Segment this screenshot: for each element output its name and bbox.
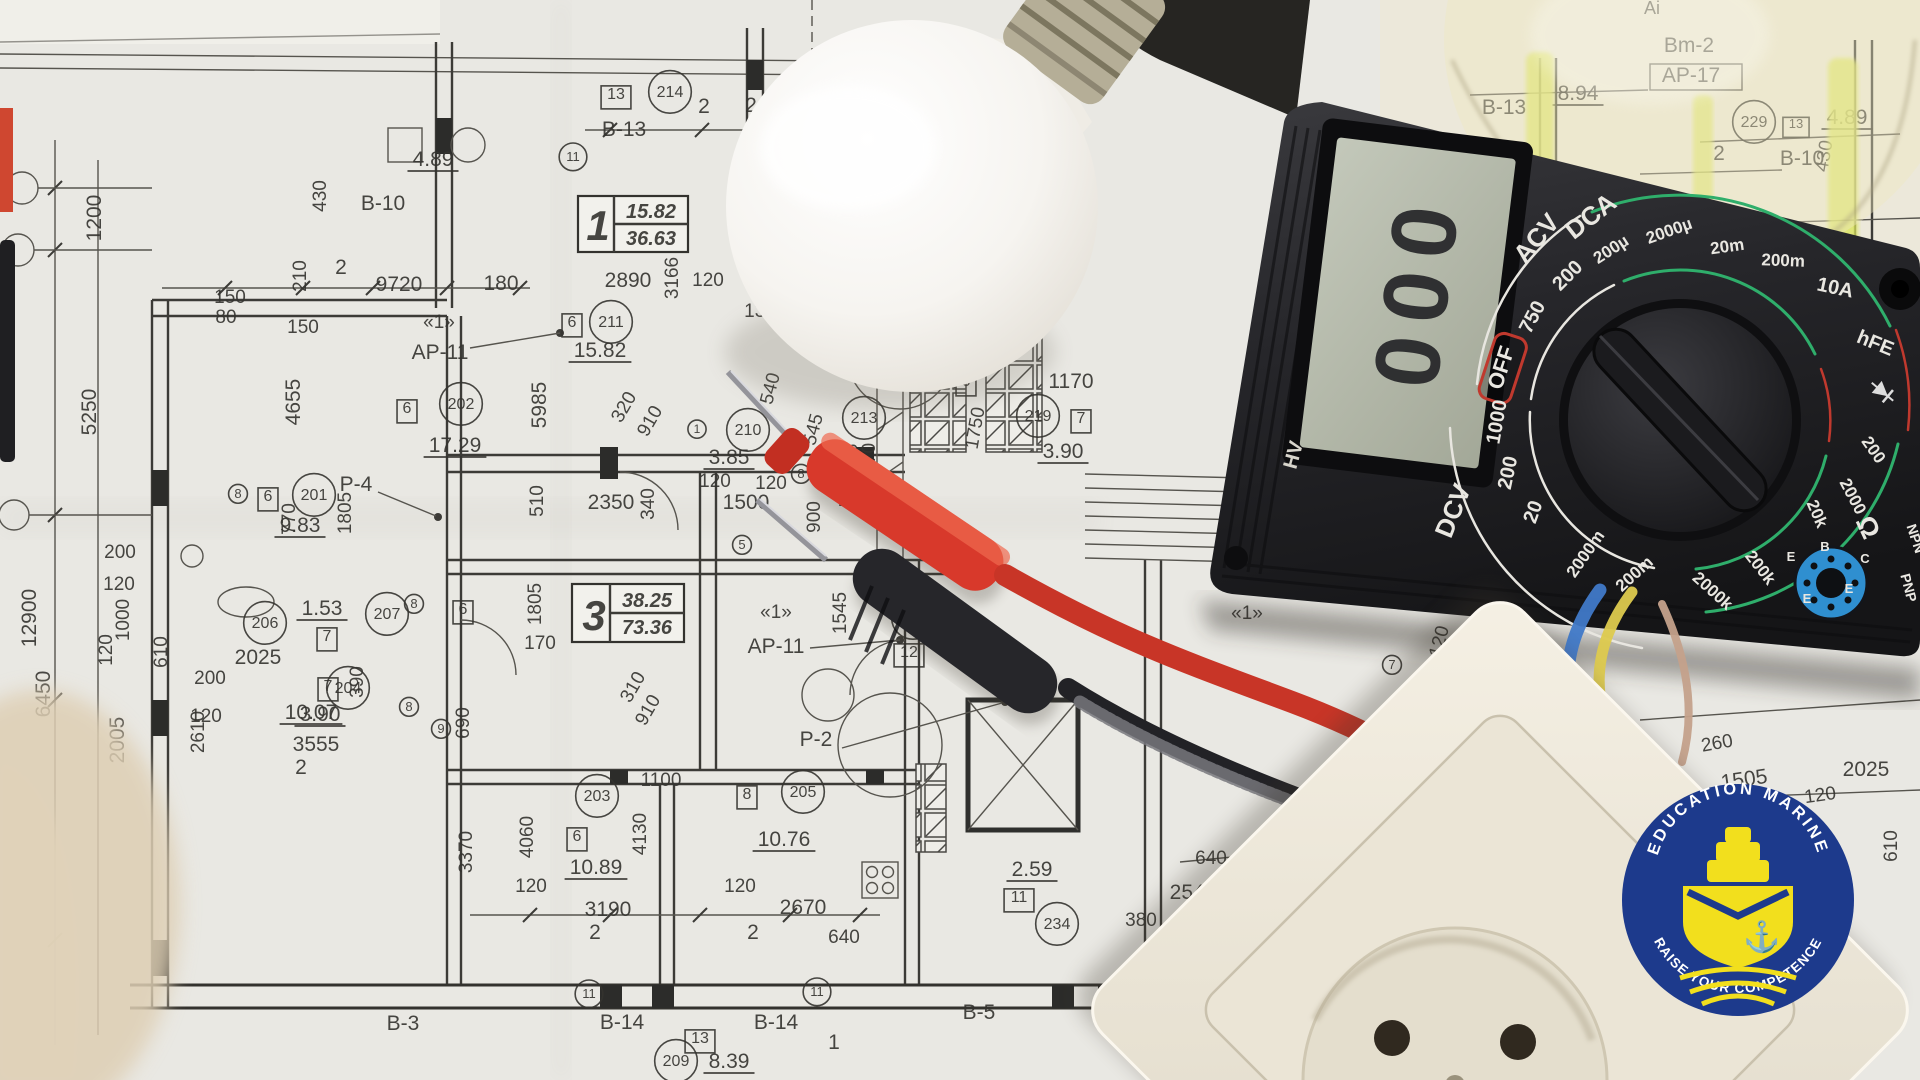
plan-label: 1 xyxy=(828,1031,840,1054)
black-strip xyxy=(0,240,15,462)
plan-label: 180 xyxy=(483,272,518,295)
plan-label: 5 xyxy=(738,537,745,552)
plan-label: 430 xyxy=(310,180,331,212)
plan-label: 2 xyxy=(295,756,307,779)
plan-label: AP-11 xyxy=(748,635,805,658)
plan-label: 11 xyxy=(582,986,596,1001)
plan-label: «1» xyxy=(760,602,792,623)
plan-label: 204 xyxy=(335,680,362,697)
case-screw xyxy=(1224,546,1248,570)
plan-label: 3370 xyxy=(456,831,477,873)
plan-label: 209 xyxy=(663,1053,690,1070)
plan-label: 8 xyxy=(405,699,412,714)
plan-label: 8 xyxy=(743,786,752,803)
plan-label: 3166 xyxy=(662,257,683,299)
transistor-socket xyxy=(1795,547,1867,619)
plan-label: 2 xyxy=(698,95,710,118)
plan-label: 8 xyxy=(797,466,804,481)
plan-label: 2.59 xyxy=(1012,858,1053,881)
plan-label: 4060 xyxy=(517,816,538,858)
plan-label: 10.07 xyxy=(285,701,338,724)
plan-label: 1200 xyxy=(83,195,106,242)
plan-label: 120 xyxy=(692,270,724,291)
dial-label: E xyxy=(1787,549,1796,564)
plan-label: 1.53 xyxy=(302,597,343,620)
plan-label: 610 xyxy=(151,636,172,668)
plan-label: 170 xyxy=(524,633,556,654)
plan-label: 201 xyxy=(301,487,328,504)
plan-label: 15.82 xyxy=(626,201,676,223)
plan-label: 210 xyxy=(290,260,311,292)
dial-label: 200m xyxy=(1761,250,1805,271)
plan-label: B-14 xyxy=(754,1011,799,1034)
dial-label: E xyxy=(1803,591,1812,606)
plan-label: 205 xyxy=(790,784,817,801)
plan-label: 120 xyxy=(699,471,731,492)
plan-label: 9.83 xyxy=(280,514,321,537)
plan-label: 1805 xyxy=(335,492,356,534)
plan-label: 11 xyxy=(1011,889,1028,906)
scene-svg: 4.89B-1043021200525012900645097201801508… xyxy=(0,0,1920,1080)
plan-label: B-10 xyxy=(361,192,405,215)
plan-label: 13 xyxy=(607,86,625,103)
plan-label: 3.85 xyxy=(709,446,750,469)
plan-label: 2610 xyxy=(188,711,209,753)
plan-label: 7 xyxy=(323,628,332,645)
plan-label: 12900 xyxy=(18,589,41,647)
plan-label: 17.29 xyxy=(429,434,482,457)
plan-label: 207 xyxy=(374,606,401,623)
plan-label: 640 xyxy=(828,927,860,948)
plan-label: 120 xyxy=(515,876,547,897)
plan-label: 214 xyxy=(657,84,684,101)
plan-label: 2670 xyxy=(780,896,827,919)
plan-label: 2 xyxy=(335,256,347,279)
plan-label: 340 xyxy=(638,488,659,520)
plan-label: 6 xyxy=(573,828,582,845)
left-edge-objects xyxy=(0,108,15,462)
plan-label: 900 xyxy=(804,501,825,533)
plan-label: 6 xyxy=(403,400,412,417)
plan-label: 4655 xyxy=(282,379,305,426)
socket-pin-hole xyxy=(1500,1024,1536,1060)
photo-canvas: 4.89B-1043021200525012900645097201801508… xyxy=(0,0,1920,1080)
plan-label: 510 xyxy=(527,485,548,517)
plan-label: B-3 xyxy=(387,1012,420,1035)
dial-label: E xyxy=(1845,581,1854,596)
plan-label: 1 xyxy=(586,202,609,249)
plan-label: 210 xyxy=(735,422,762,439)
plan-label: 206 xyxy=(252,615,279,632)
plan-label: 200 xyxy=(194,668,226,689)
plan-label: 8.39 xyxy=(709,1050,750,1073)
dial-label: C xyxy=(1860,551,1870,566)
plan-label: AP-11 xyxy=(412,341,469,364)
plan-label: 73.36 xyxy=(622,617,673,639)
plan-label: P-2 xyxy=(800,728,833,751)
plan-label: 150 xyxy=(287,317,319,338)
plan-label: 8 xyxy=(234,486,241,501)
plan-label: 690 xyxy=(453,707,474,739)
plan-label: 2890 xyxy=(605,269,652,292)
plan-label: 200 xyxy=(104,542,136,563)
plan-label: 4130 xyxy=(630,813,651,855)
plan-label: 36.63 xyxy=(626,228,676,250)
plan-label: 219 xyxy=(1025,408,1052,425)
plan-label: 9 xyxy=(437,721,444,736)
red-strip xyxy=(0,108,13,212)
plan-label: 211 xyxy=(598,314,624,331)
plan-label: 120 xyxy=(724,876,756,897)
plan-label: B-5 xyxy=(963,1001,996,1024)
plan-label: 6 xyxy=(459,601,468,618)
plan-label: 120 xyxy=(1803,783,1837,808)
plan-label: 11 xyxy=(810,984,824,999)
plan-label: 213 xyxy=(851,410,878,427)
plan-label: 3190 xyxy=(585,898,632,921)
plan-label: 13 xyxy=(691,1030,709,1047)
plan-label: 1100 xyxy=(641,770,682,791)
plan-label: 9720 xyxy=(376,273,423,296)
plan-label: 2025 xyxy=(1843,758,1890,781)
socket-pin-hole xyxy=(1374,1020,1410,1056)
plan-label: 2025 xyxy=(235,646,282,669)
plan-label: 4.89 xyxy=(413,148,454,171)
plan-label: 2 xyxy=(747,921,759,944)
plan-label: 6 xyxy=(568,314,577,331)
plan-label: B-14 xyxy=(600,1011,645,1034)
plan-label: 2 xyxy=(589,921,601,944)
plan-label: 2350 xyxy=(588,491,635,514)
plan-label: 8 xyxy=(410,596,417,611)
plan-label: 11 xyxy=(566,149,580,164)
plan-label: 1 xyxy=(694,422,701,436)
plan-label: 610 xyxy=(1881,830,1902,862)
anchor-icon: ⚓ xyxy=(1743,919,1780,954)
plan-label: 5250 xyxy=(78,389,101,436)
plan-label: 5985 xyxy=(528,382,551,429)
plan-label: 10.76 xyxy=(758,828,811,851)
plan-label: 3 xyxy=(582,592,605,639)
plan-label: 120 xyxy=(96,634,117,666)
rotary-knob xyxy=(1559,299,1801,541)
plan-label: 6 xyxy=(264,488,273,505)
plan-label: 202 xyxy=(448,396,475,413)
plan-label: 3555 xyxy=(293,733,340,756)
dial-label: B xyxy=(1820,539,1829,554)
plan-label: 3.90 xyxy=(1043,440,1084,463)
plan-label: 234 xyxy=(1044,916,1071,933)
plan-label: 38.25 xyxy=(622,590,673,612)
plan-label: 1545 xyxy=(830,592,851,634)
plan-label: 10.89 xyxy=(570,856,623,879)
plan-label: 80 xyxy=(215,307,236,328)
plan-label: 150 xyxy=(214,287,246,308)
plan-label: B-13 xyxy=(602,118,646,141)
plan-label: 1805 xyxy=(525,583,546,625)
plan-label: 203 xyxy=(584,788,611,805)
plan-label: 120 xyxy=(103,574,135,595)
plan-label: «1» xyxy=(423,312,455,333)
plan-label: 1170 xyxy=(1048,370,1093,393)
plan-label: 7 xyxy=(1077,410,1086,427)
